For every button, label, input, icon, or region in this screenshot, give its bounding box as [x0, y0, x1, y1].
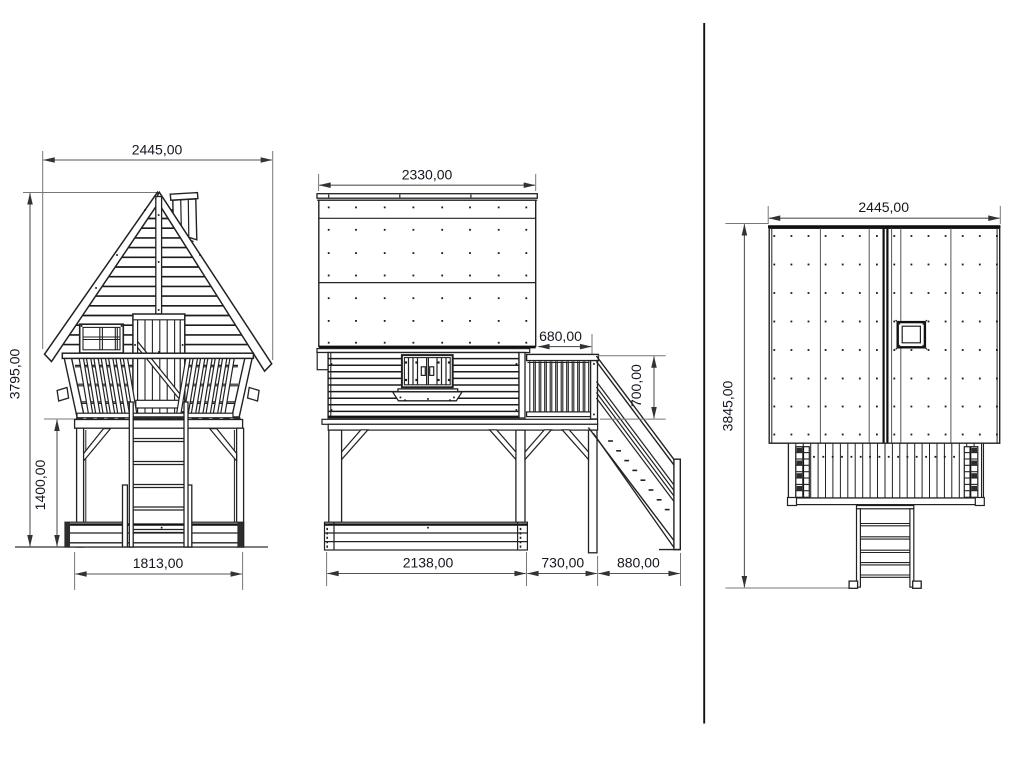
- svg-text:1400,00: 1400,00: [32, 459, 48, 510]
- svg-text:700,00: 700,00: [628, 364, 644, 407]
- svg-text:880,00: 880,00: [617, 555, 660, 571]
- svg-text:1813,00: 1813,00: [133, 555, 184, 571]
- svg-text:2445,00: 2445,00: [858, 199, 909, 215]
- svg-text:2445,00: 2445,00: [132, 142, 183, 158]
- svg-text:3795,00: 3795,00: [7, 348, 23, 399]
- svg-text:2138,00: 2138,00: [403, 555, 454, 571]
- svg-text:680,00: 680,00: [539, 328, 582, 344]
- svg-text:3845,00: 3845,00: [720, 380, 736, 431]
- svg-text:730,00: 730,00: [541, 555, 584, 571]
- svg-text:2330,00: 2330,00: [402, 167, 453, 183]
